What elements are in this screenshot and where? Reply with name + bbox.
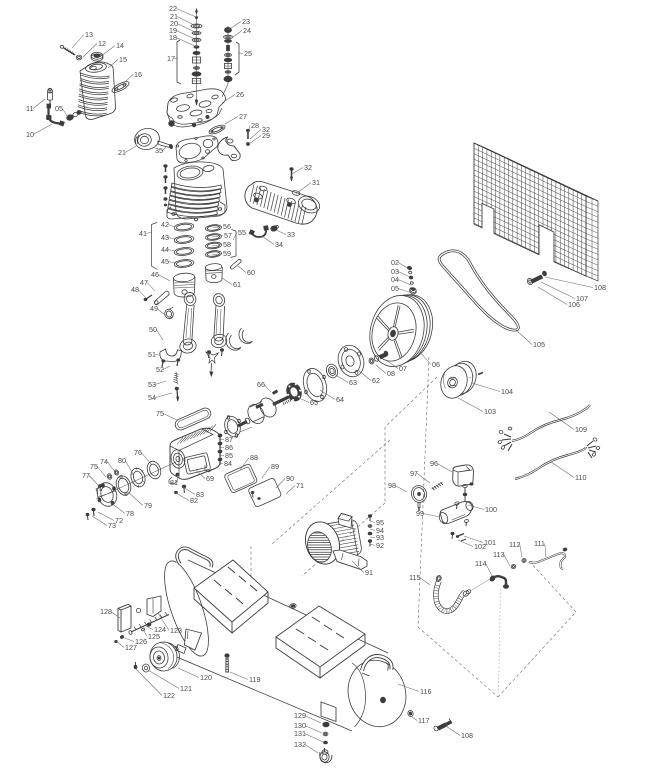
- svg-text:13: 13: [85, 30, 93, 39]
- svg-text:104: 104: [501, 387, 513, 396]
- svg-text:89: 89: [271, 462, 279, 471]
- svg-text:105: 105: [533, 340, 545, 349]
- svg-text:10: 10: [26, 130, 34, 139]
- svg-text:62: 62: [372, 376, 380, 385]
- svg-text:117: 117: [418, 716, 429, 725]
- svg-text:111: 111: [534, 539, 545, 548]
- svg-text:56: 56: [223, 222, 231, 231]
- svg-text:11: 11: [26, 104, 33, 113]
- svg-text:129: 129: [294, 711, 306, 720]
- svg-text:17: 17: [167, 54, 175, 63]
- svg-text:131: 131: [294, 729, 306, 738]
- svg-text:16: 16: [134, 70, 142, 79]
- svg-text:91: 91: [365, 568, 373, 577]
- svg-text:108: 108: [461, 731, 473, 740]
- svg-text:21: 21: [118, 148, 126, 157]
- svg-text:100: 100: [485, 505, 497, 514]
- svg-text:65: 65: [310, 398, 318, 407]
- svg-text:18: 18: [169, 33, 177, 42]
- svg-text:121: 121: [180, 684, 192, 693]
- svg-text:55: 55: [238, 228, 246, 237]
- svg-text:52: 52: [156, 365, 164, 374]
- svg-text:109: 109: [575, 425, 587, 434]
- svg-text:05: 05: [391, 284, 399, 293]
- svg-text:25: 25: [244, 49, 252, 58]
- svg-text:76: 76: [134, 448, 142, 457]
- svg-text:53: 53: [148, 380, 156, 389]
- svg-text:98: 98: [388, 481, 396, 490]
- svg-text:49: 49: [150, 304, 158, 313]
- svg-text:90: 90: [286, 474, 294, 483]
- svg-text:97: 97: [410, 469, 418, 478]
- svg-text:113: 113: [493, 550, 504, 559]
- svg-text:71: 71: [296, 481, 304, 490]
- svg-text:102: 102: [474, 542, 486, 551]
- svg-text:82: 82: [190, 496, 198, 505]
- svg-text:84: 84: [224, 459, 232, 468]
- svg-text:75: 75: [156, 409, 164, 418]
- svg-text:32: 32: [304, 163, 312, 172]
- svg-text:74: 74: [100, 457, 108, 466]
- svg-text:08: 08: [387, 369, 395, 378]
- svg-text:75: 75: [90, 462, 98, 471]
- svg-text:04: 04: [391, 275, 399, 284]
- svg-text:26: 26: [236, 90, 244, 99]
- svg-text:59: 59: [223, 249, 231, 258]
- svg-text:35: 35: [155, 146, 163, 155]
- svg-text:45: 45: [161, 257, 169, 266]
- svg-text:05: 05: [55, 104, 63, 113]
- svg-text:77: 77: [82, 471, 90, 480]
- svg-text:12: 12: [98, 39, 106, 48]
- svg-text:54: 54: [148, 393, 156, 402]
- svg-text:122: 122: [163, 691, 175, 700]
- svg-text:58: 58: [223, 240, 231, 249]
- svg-text:103: 103: [484, 407, 496, 416]
- svg-text:63: 63: [349, 378, 357, 387]
- svg-text:50: 50: [149, 325, 157, 334]
- svg-text:115: 115: [409, 573, 420, 582]
- svg-text:96: 96: [430, 459, 438, 468]
- svg-text:99: 99: [416, 509, 424, 518]
- svg-text:61: 61: [233, 280, 241, 289]
- svg-text:33: 33: [287, 230, 295, 239]
- svg-text:120: 120: [200, 673, 212, 682]
- svg-text:23: 23: [242, 17, 250, 26]
- svg-text:44: 44: [161, 245, 169, 254]
- svg-text:125: 125: [148, 632, 160, 641]
- svg-text:81: 81: [170, 478, 178, 487]
- svg-text:47: 47: [140, 278, 148, 287]
- svg-text:123: 123: [170, 626, 182, 635]
- svg-text:66: 66: [257, 380, 265, 389]
- svg-text:80: 80: [118, 456, 126, 465]
- svg-text:127: 127: [125, 643, 137, 652]
- svg-text:41: 41: [139, 229, 147, 238]
- svg-text:07: 07: [399, 364, 407, 373]
- svg-text:114: 114: [475, 559, 486, 568]
- svg-text:112: 112: [509, 540, 520, 549]
- svg-text:06: 06: [432, 360, 440, 369]
- svg-text:132: 132: [294, 740, 306, 749]
- svg-text:31: 31: [312, 178, 320, 187]
- svg-text:107: 107: [576, 294, 588, 303]
- svg-text:128: 128: [100, 607, 112, 616]
- svg-text:27: 27: [239, 112, 247, 121]
- svg-text:15: 15: [119, 55, 127, 64]
- svg-text:110: 110: [575, 473, 586, 482]
- svg-text:57: 57: [224, 231, 232, 240]
- svg-text:29: 29: [262, 131, 270, 140]
- svg-text:92: 92: [376, 541, 384, 550]
- svg-text:34: 34: [275, 240, 283, 249]
- svg-text:64: 64: [336, 395, 344, 404]
- svg-text:72: 72: [115, 516, 123, 525]
- svg-text:78: 78: [126, 509, 134, 518]
- svg-text:46: 46: [151, 270, 159, 279]
- svg-text:69: 69: [206, 474, 214, 483]
- svg-text:51: 51: [148, 350, 156, 359]
- svg-text:88: 88: [250, 453, 258, 462]
- svg-text:119: 119: [249, 675, 260, 684]
- svg-text:02: 02: [391, 258, 399, 267]
- svg-text:14: 14: [116, 41, 124, 50]
- svg-text:79: 79: [144, 501, 152, 510]
- svg-text:60: 60: [247, 268, 255, 277]
- svg-text:28: 28: [251, 121, 259, 130]
- svg-text:48: 48: [131, 285, 139, 294]
- svg-text:43: 43: [161, 233, 169, 242]
- svg-text:116: 116: [420, 687, 431, 696]
- svg-text:24: 24: [243, 26, 251, 35]
- svg-text:42: 42: [161, 220, 169, 229]
- svg-text:73: 73: [108, 521, 116, 530]
- svg-text:108: 108: [594, 283, 606, 292]
